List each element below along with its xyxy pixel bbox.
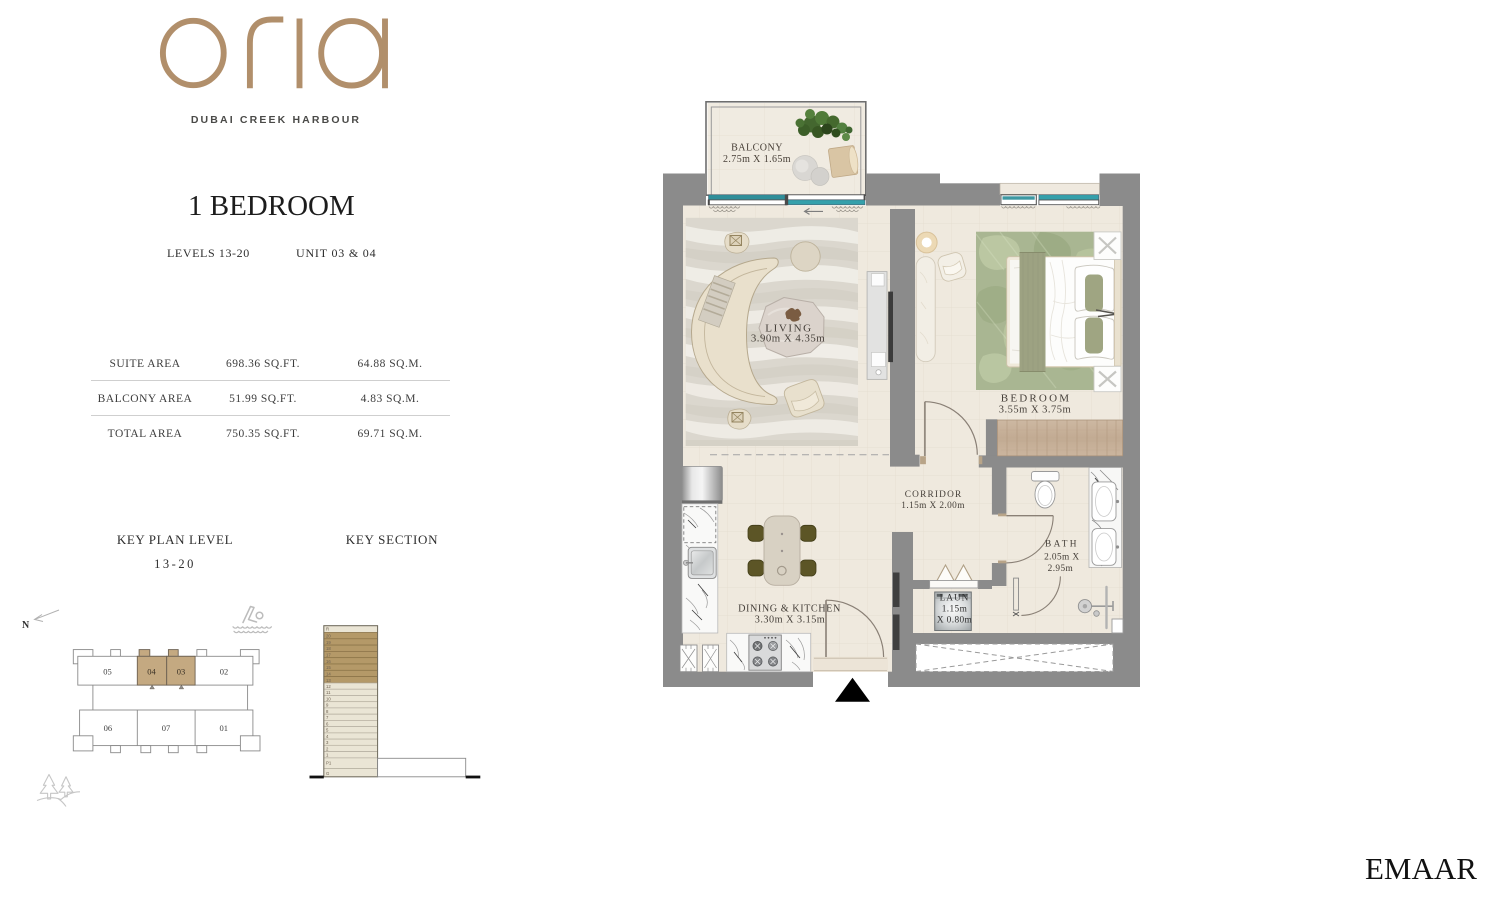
svg-text:3.90m X 4.35m: 3.90m X 4.35m <box>751 333 825 345</box>
svg-text:04: 04 <box>147 667 156 677</box>
svg-text:3.30m X 3.15m: 3.30m X 3.15m <box>755 615 825 626</box>
svg-text:18: 18 <box>326 646 331 651</box>
svg-text:14: 14 <box>326 671 331 676</box>
svg-text:2.95m: 2.95m <box>1048 564 1074 574</box>
svg-text:13: 13 <box>326 678 331 683</box>
svg-text:BATH: BATH <box>1045 540 1079 550</box>
svg-text:17: 17 <box>326 653 331 658</box>
svg-text:10: 10 <box>326 697 331 702</box>
svg-text:R: R <box>326 627 329 632</box>
svg-text:LAUN: LAUN <box>940 594 970 604</box>
svg-text:07: 07 <box>162 723 171 733</box>
svg-text:2.75m X 1.65m: 2.75m X 1.65m <box>723 154 791 165</box>
svg-text:01: 01 <box>219 723 228 733</box>
svg-text:3.55m X 3.75m: 3.55m X 3.75m <box>999 405 1071 416</box>
svg-text:02: 02 <box>220 667 229 677</box>
svg-text:2.05m X: 2.05m X <box>1044 553 1079 563</box>
svg-text:CORRIDOR: CORRIDOR <box>905 490 963 500</box>
svg-text:BEDROOM: BEDROOM <box>1001 393 1071 405</box>
svg-text:15: 15 <box>326 665 331 670</box>
svg-text:1.15m X 2.00m: 1.15m X 2.00m <box>901 501 965 511</box>
svg-text:20: 20 <box>326 634 331 639</box>
svg-text:19: 19 <box>326 640 331 645</box>
svg-text:N: N <box>22 620 30 631</box>
svg-text:BALCONY: BALCONY <box>731 143 783 154</box>
svg-text:X 0.80m: X 0.80m <box>937 616 973 626</box>
svg-text:11: 11 <box>326 690 331 695</box>
svg-text:03: 03 <box>177 667 186 677</box>
svg-text:05: 05 <box>103 667 112 677</box>
svg-text:P1: P1 <box>326 761 332 766</box>
svg-text:16: 16 <box>326 659 331 664</box>
svg-text:12: 12 <box>326 684 331 689</box>
svg-text:1.15m: 1.15m <box>942 605 968 615</box>
svg-text:06: 06 <box>104 723 113 733</box>
